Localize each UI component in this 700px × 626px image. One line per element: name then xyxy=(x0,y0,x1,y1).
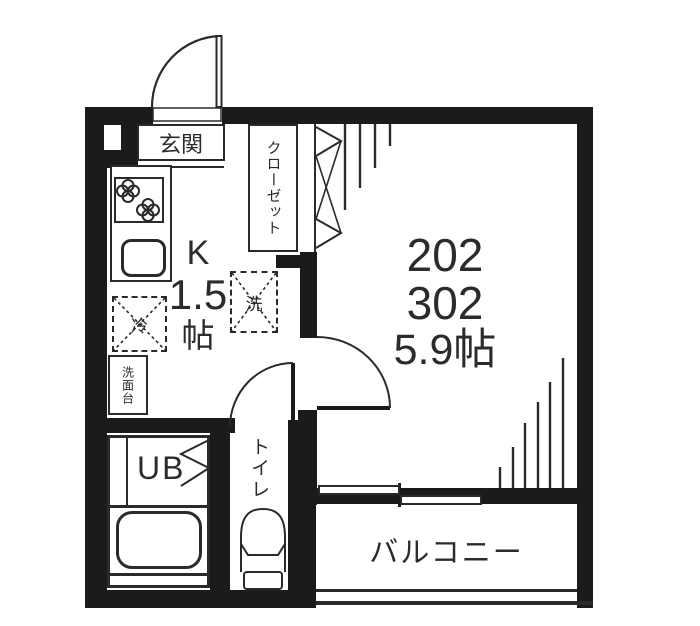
refrigerator-label: 冷 xyxy=(130,312,149,337)
sink-icon xyxy=(121,239,166,277)
wall-segment xyxy=(210,420,230,590)
unit-bath-box: UB xyxy=(107,435,210,588)
toilet-door-icon xyxy=(230,363,293,427)
wall-segment xyxy=(85,590,316,608)
sliding-door-panel-icon xyxy=(400,495,482,505)
wall-niche xyxy=(104,125,121,150)
refrigerator-box: 冷 xyxy=(112,296,167,352)
kitchen-unit: 帖 xyxy=(163,317,233,355)
entrance-door-icon xyxy=(152,36,222,121)
closet-label: クローゼット xyxy=(263,140,284,236)
entrance-label: 玄関 xyxy=(159,127,203,159)
window-hatch-icon xyxy=(500,358,563,488)
bath-shelf-line xyxy=(126,438,128,505)
kitchen-type: K xyxy=(163,233,233,273)
closet-door-track xyxy=(314,124,316,252)
washer-box: 洗 xyxy=(230,271,278,333)
closet-box: クローゼット xyxy=(248,124,298,252)
wall-segment xyxy=(300,490,316,593)
balcony-railing-line xyxy=(316,601,593,605)
stove-box xyxy=(114,177,164,223)
floor-plan: 玄関 クローゼット 冷 洗 洗面台 UB トイレ K 1.5 帖 202 302… xyxy=(0,0,700,626)
bifold-door-icon xyxy=(316,127,341,248)
toilet-fixture-icon xyxy=(241,509,285,589)
unit-number: 302 xyxy=(370,279,520,327)
washbasin-box: 洗面台 xyxy=(108,355,148,415)
kitchen-label: K 1.5 帖 xyxy=(163,233,233,355)
window-hatch-icon xyxy=(345,124,390,210)
entrance-label-box: 玄関 xyxy=(137,124,225,161)
toilet-label: トイレ xyxy=(245,437,272,500)
wall-segment xyxy=(222,107,593,124)
bath-divider-line xyxy=(110,505,207,508)
kitchen-size: 1.5 xyxy=(163,273,233,317)
unit-bath-label: UB xyxy=(137,450,185,487)
main-room-label: 202 302 5.9帖 xyxy=(370,231,520,373)
wall-segment xyxy=(85,107,107,608)
washer-label: 洗 xyxy=(245,290,264,315)
balcony-railing-line xyxy=(316,589,577,592)
wall-segment xyxy=(276,255,317,268)
bathtub-icon xyxy=(116,511,202,569)
wall-segment xyxy=(577,107,593,608)
bath-divider-line xyxy=(110,573,207,576)
main-room-size: 5.9帖 xyxy=(370,327,520,373)
washbasin-label: 洗面台 xyxy=(120,366,137,405)
sliding-door-panel-icon xyxy=(318,485,400,495)
unit-number: 202 xyxy=(370,231,520,279)
balcony-label: バルコニー xyxy=(316,529,577,571)
